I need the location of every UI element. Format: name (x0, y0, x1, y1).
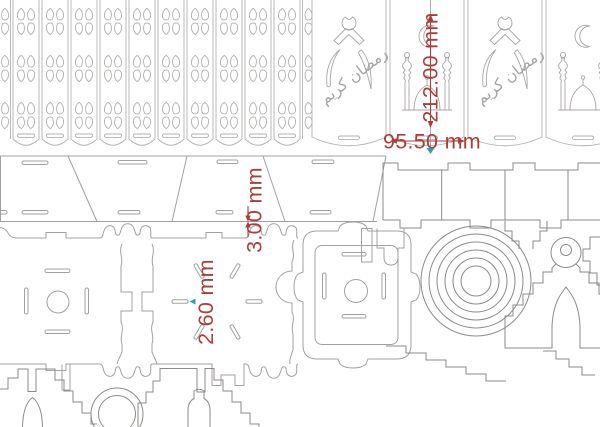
circle-cutout (47, 291, 69, 313)
slot-cutout (118, 161, 147, 165)
edge-castellation (152, 364, 246, 386)
trapezoid-slant-2 (172, 156, 187, 222)
slot-cutout (312, 160, 334, 164)
finial-piece (505, 221, 600, 348)
strip-bottom-edge (383, 220, 600, 228)
slat-strips-group (2, 0, 312, 145)
slot-cutout (216, 211, 233, 215)
dimension-slot-width: 2.60 mm (190, 259, 219, 345)
panel-calligraphy-2 (468, 0, 547, 146)
lancet-arch-cutout (23, 398, 43, 427)
layout-drawing: رمضان كريم (0, 0, 600, 427)
dimension-width: 95.50 mm (383, 130, 481, 154)
stepped-pyramid-1 (0, 369, 97, 424)
circle-cutout (345, 280, 368, 303)
ring-outline (437, 242, 515, 320)
finial-head-outline (551, 238, 581, 268)
slot-cutout (85, 288, 89, 314)
stepped-pieces-group (0, 346, 595, 427)
slot-cutout (342, 253, 366, 257)
ring-outline (445, 250, 507, 312)
ornate-channel-right (142, 244, 157, 364)
ring-outline (429, 234, 523, 328)
ring-piece-outer (91, 388, 143, 427)
panel-mosque-2 (546, 0, 600, 146)
slot-cutout (0, 211, 7, 215)
slot-cutout (217, 160, 238, 164)
decor-panels-group (312, 0, 600, 146)
slot-cutout (342, 315, 366, 319)
dimension-label-thickness: 3.00 mm (243, 167, 267, 253)
slot-cutout (246, 300, 262, 303)
stepped-pyramid-2 (138, 369, 259, 427)
dimension-label-slot: 2.60 mm (194, 259, 218, 345)
panel-calligraphy-1 (312, 0, 391, 146)
dimension-label-width: 95.50 mm (383, 130, 481, 154)
ring-outline (461, 266, 491, 296)
ornate-channel-left (117, 244, 132, 364)
slot-cutout (45, 269, 70, 273)
slot-cutout (229, 263, 240, 279)
offcut-tab-piece (377, 229, 404, 266)
staircase-strip (386, 346, 506, 381)
strip-top-edge (383, 163, 600, 220)
slot-cutout (22, 211, 48, 215)
step-fragment (583, 237, 600, 285)
ring-piece-inner (99, 396, 136, 427)
slot-cutout (323, 273, 327, 299)
vent-circle-cluster (25, 269, 89, 334)
dimension-thickness: 3.00 mm (243, 167, 267, 253)
finial-head-hole (561, 245, 572, 256)
slot-cutout (45, 330, 70, 334)
ornate-edge-recess (276, 240, 294, 364)
slot-cutout (229, 324, 240, 340)
castellated-strip (383, 163, 600, 228)
trapezoid-slant-4 (373, 156, 386, 222)
staircase-strip (543, 351, 595, 375)
slot-cutout (310, 211, 331, 215)
slot-cutout (118, 211, 140, 215)
bottle-arch-cutout (188, 389, 210, 427)
base-bottom-edge (0, 364, 100, 371)
base-top-edge (0, 228, 100, 239)
slot-cutout (25, 288, 29, 314)
dimension-annotations: 212.00 mm 95.50 mm 3.00 mm 2.60 mm (190, 0, 482, 345)
finial-body-outline (505, 264, 600, 348)
dimension-label-height: 212.00 mm (419, 12, 443, 122)
slot-cutout (382, 273, 386, 299)
slot-cutout (22, 161, 48, 165)
trapezoid-slant-1 (68, 156, 97, 222)
concentric-rings-piece (421, 226, 531, 336)
slot-cutout (172, 300, 188, 303)
trapezoid-band (0, 156, 386, 222)
laser-cut-sheet: رمضان كريم (0, 0, 600, 427)
ring-outline (453, 258, 499, 304)
